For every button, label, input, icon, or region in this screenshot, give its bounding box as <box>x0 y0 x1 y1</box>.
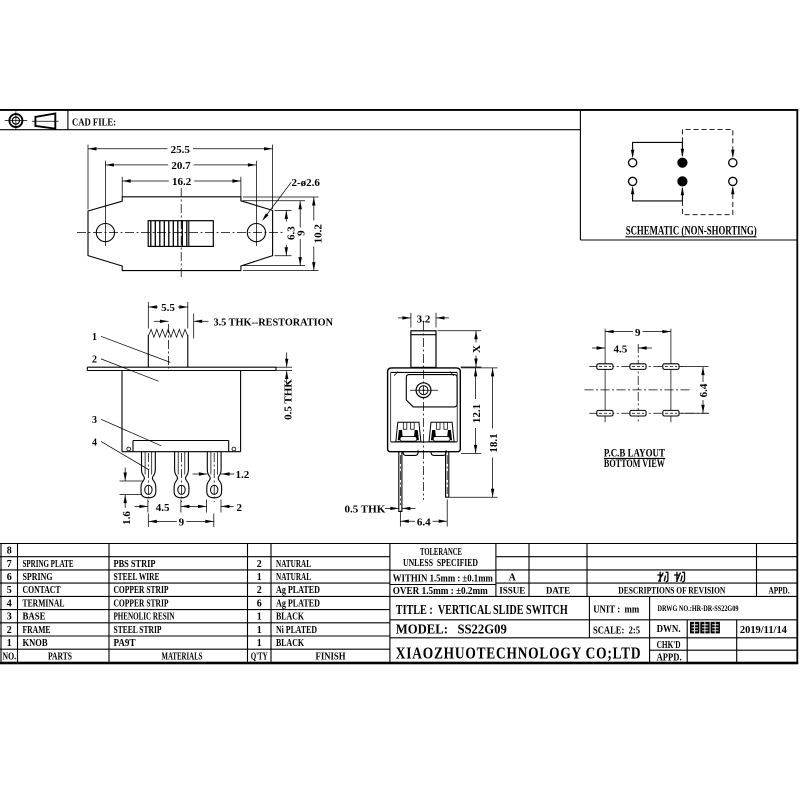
svg-text:4: 4 <box>7 598 12 609</box>
svg-text:2: 2 <box>257 585 262 596</box>
svg-text:STEEL WIRE: STEEL WIRE <box>114 572 160 583</box>
svg-text:DWN.: DWN. <box>657 624 681 635</box>
svg-text:UNIT : mm: UNIT : mm <box>593 605 640 616</box>
svg-text:CONTACT: CONTACT <box>23 585 61 596</box>
svg-text:SPRING: SPRING <box>23 572 53 583</box>
svg-text:12.1: 12.1 <box>471 404 483 423</box>
svg-text:2: 2 <box>257 559 262 570</box>
svg-text:6.4: 6.4 <box>698 383 710 397</box>
svg-text:6: 6 <box>257 598 262 609</box>
svg-text:0.5 THK: 0.5 THK <box>345 503 386 515</box>
svg-text:NATURAL: NATURAL <box>276 559 311 570</box>
svg-text:3.2: 3.2 <box>417 313 431 325</box>
svg-text:1: 1 <box>92 332 97 343</box>
svg-text:1: 1 <box>257 612 262 623</box>
svg-text:16.2: 16.2 <box>172 176 192 188</box>
svg-text:2019/11/14: 2019/11/14 <box>740 624 787 636</box>
svg-text:NATURAL: NATURAL <box>276 572 311 583</box>
svg-text:Ag PLATED: Ag PLATED <box>276 598 320 609</box>
svg-text:PA9T: PA9T <box>114 638 136 649</box>
svg-text:1.2: 1.2 <box>236 469 250 481</box>
svg-text:9: 9 <box>179 517 185 529</box>
svg-text:Q'TY: Q'TY <box>251 651 269 662</box>
svg-text:25.5: 25.5 <box>171 144 191 156</box>
svg-text:NO.: NO. <box>3 651 17 662</box>
svg-text:BOTTOM VIEW: BOTTOM VIEW <box>604 456 665 470</box>
svg-text:5.5: 5.5 <box>161 302 175 314</box>
svg-text:2-ø2.6: 2-ø2.6 <box>292 177 321 189</box>
svg-text:BASE: BASE <box>23 612 46 623</box>
svg-text:CHK'D: CHK'D <box>657 640 681 651</box>
svg-text:3.5 THK--RESTORATION: 3.5 THK--RESTORATION <box>214 317 334 329</box>
svg-text:3: 3 <box>92 415 97 426</box>
svg-text:SCALE: 2:5: SCALE: 2:5 <box>593 625 640 636</box>
svg-text:DATE: DATE <box>546 586 570 596</box>
svg-text:Ag PLATED: Ag PLATED <box>276 585 320 596</box>
svg-text:TOLERANCE: TOLERANCE <box>420 547 462 558</box>
svg-text:BLACK: BLACK <box>276 638 304 649</box>
svg-text:TITLE : VERTICAL SLIDE SWITCH: TITLE : VERTICAL SLIDE SWITCH <box>396 603 568 618</box>
svg-text:PARTS: PARTS <box>48 651 72 662</box>
svg-text:XIAOZHUOTECHNOLOGY CO;LTD: XIAOZHUOTECHNOLOGY CO;LTD <box>396 644 642 663</box>
svg-text:DESCRIPTIONS OF REVISION: DESCRIPTIONS OF REVISION <box>618 586 725 596</box>
svg-text:5: 5 <box>7 585 12 596</box>
svg-text:ISSUE: ISSUE <box>499 586 525 596</box>
svg-text:BLACK: BLACK <box>276 612 304 623</box>
svg-text:1: 1 <box>257 572 262 583</box>
svg-text:A: A <box>509 573 517 584</box>
svg-text:PBS STRIP: PBS STRIP <box>114 559 156 570</box>
svg-text:1: 1 <box>257 625 262 636</box>
svg-text:6: 6 <box>7 572 12 583</box>
svg-text:OVER 1.5mm : ±0.2mm: OVER 1.5mm : ±0.2mm <box>393 586 489 597</box>
svg-text:KNOB: KNOB <box>23 638 48 649</box>
svg-text:1.6: 1.6 <box>121 511 133 525</box>
svg-text:9: 9 <box>296 230 308 236</box>
svg-text:APPD.: APPD. <box>657 652 682 663</box>
svg-text:DRWG NO.:HR-DR-SS22G09: DRWG NO.:HR-DR-SS22G09 <box>658 603 739 613</box>
svg-text:Ni PLATED: Ni PLATED <box>276 625 317 636</box>
svg-text:0.5 THK: 0.5 THK <box>283 379 295 420</box>
svg-text:X: X <box>471 345 483 353</box>
svg-text:8: 8 <box>7 546 12 557</box>
svg-text:1: 1 <box>7 638 12 649</box>
svg-text:STEEL STRIP: STEEL STRIP <box>114 625 162 636</box>
svg-text:UNLESS SPECIFIED: UNLESS SPECIFIED <box>403 558 478 569</box>
svg-text:MODEL: SS22G09: MODEL: SS22G09 <box>396 621 507 636</box>
svg-text:4.5: 4.5 <box>156 502 170 514</box>
svg-text:2: 2 <box>92 355 97 366</box>
svg-text:2: 2 <box>7 625 12 636</box>
svg-text:2: 2 <box>237 502 243 514</box>
svg-text:18.1: 18.1 <box>488 433 500 452</box>
svg-text:9: 9 <box>635 327 641 339</box>
svg-text:COPPER STRIP: COPPER STRIP <box>114 585 169 596</box>
svg-text:APPD.: APPD. <box>769 586 790 596</box>
svg-text:FRAME: FRAME <box>23 625 51 636</box>
svg-text:MATERIALS: MATERIALS <box>162 651 203 662</box>
svg-text:PHENOLIC RESIN: PHENOLIC RESIN <box>114 612 176 623</box>
svg-text:4: 4 <box>92 438 97 449</box>
svg-text:10.2: 10.2 <box>312 224 324 244</box>
svg-text:CAD FILE:: CAD FILE: <box>72 117 116 129</box>
svg-text:3: 3 <box>7 612 12 623</box>
svg-text:WITHIN 1.5mm : ±0.1mm: WITHIN 1.5mm : ±0.1mm <box>393 574 494 585</box>
svg-text:6.4: 6.4 <box>417 516 431 528</box>
svg-text:COPPER STRIP: COPPER STRIP <box>114 598 169 609</box>
svg-text:FINISH: FINISH <box>316 651 346 662</box>
svg-text:1: 1 <box>257 638 262 649</box>
svg-text:SCHEMATIC (NON-SHORTING): SCHEMATIC (NON-SHORTING) <box>626 223 757 237</box>
svg-text:4.5: 4.5 <box>614 343 628 355</box>
svg-text:TERMINAL: TERMINAL <box>23 598 65 609</box>
svg-text:SPRING PLATE: SPRING PLATE <box>23 559 74 570</box>
svg-text:20.7: 20.7 <box>171 160 191 172</box>
svg-text:7: 7 <box>7 559 12 570</box>
